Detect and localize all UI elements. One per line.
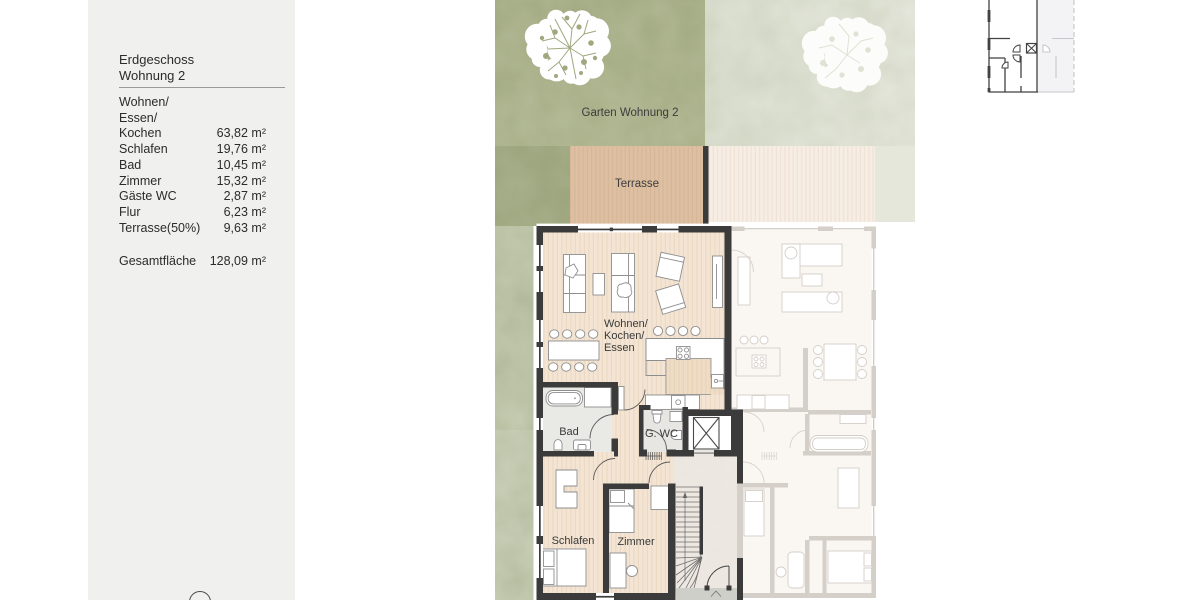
svg-text:Zimmer: Zimmer [617,536,655,548]
svg-text:Terrasse: Terrasse [615,178,659,190]
svg-text:Essen: Essen [604,342,635,354]
svg-text:Wohnen/: Wohnen/ [604,318,649,330]
svg-text:Bad: Bad [559,426,579,438]
svg-text:G. WC: G. WC [645,428,678,440]
svg-text:Garten Wohnung 2: Garten Wohnung 2 [582,107,679,119]
svg-text:Schlafen: Schlafen [552,535,595,547]
svg-text:Kochen/: Kochen/ [604,330,645,342]
